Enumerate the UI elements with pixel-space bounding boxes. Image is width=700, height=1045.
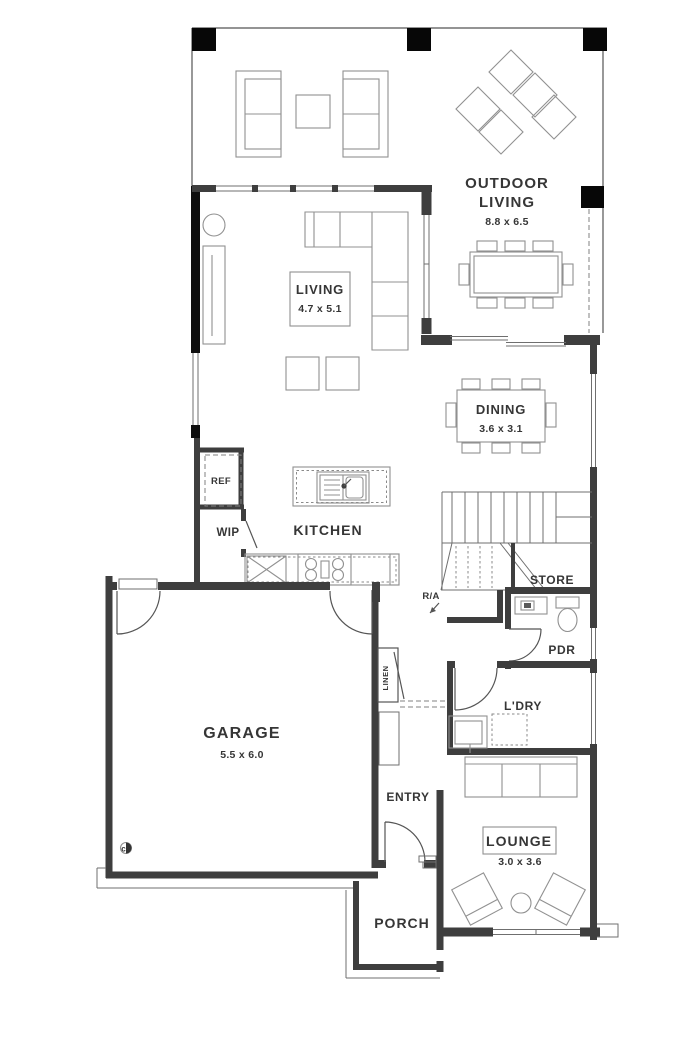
bulkhead-dashed (400, 701, 448, 707)
lounge-dims: 3.0 x 3.6 (498, 856, 542, 868)
kitchen-label: KITCHEN (293, 522, 362, 538)
lounge-window (493, 930, 580, 935)
corner-step (597, 924, 618, 937)
laundry: L'DRY (447, 665, 597, 754)
living-room: LIVING 4.7 x 5.1 (192, 186, 432, 438)
pantry-walls (197, 450, 244, 557)
post (192, 28, 216, 51)
armchair (535, 873, 586, 925)
kitchen: REF WIP KITCHEN (197, 438, 399, 588)
linen-closet: LINEN (378, 648, 404, 702)
outdoor-dining-set (459, 241, 573, 308)
dining-name: DINING (476, 402, 526, 417)
porch-label: PORCH (374, 915, 430, 931)
powder-room: PDR (508, 590, 596, 669)
toilet (556, 597, 579, 632)
garage-dims: 5.5 x 6.0 (220, 749, 264, 761)
living-dims: 4.7 x 5.1 (298, 303, 342, 315)
meter-label: c (121, 845, 126, 854)
outdoor-loungers (456, 50, 576, 154)
lounge-name: LOUNGE (486, 833, 552, 849)
ottoman (326, 357, 359, 390)
outdoor-living-name-line2: LIVING (479, 194, 535, 211)
garage-side-door (117, 591, 160, 634)
laundry-window (592, 673, 596, 744)
lower-treads (456, 546, 492, 588)
hall-cupboard (379, 712, 399, 765)
plant (203, 214, 225, 236)
pdr-door (509, 629, 541, 661)
pdr-window (592, 628, 596, 659)
lounge-sofa (465, 757, 577, 797)
meter: c (121, 843, 132, 854)
outdoor-living-name-line1: OUTDOOR (465, 175, 549, 192)
alfresco-slider (450, 337, 566, 347)
laundry-trough (449, 716, 487, 753)
wip-label: WIP (217, 527, 240, 539)
cooktop-bench (245, 554, 399, 585)
side-table (511, 893, 531, 913)
island-bench (293, 467, 390, 506)
garage-side-door-panel (119, 579, 157, 589)
dining-window (592, 374, 596, 467)
floor-plan-page: OUTDOOR LIVING 8.8 x 6.5 LIVING 4.7 x 5.… (0, 0, 700, 1045)
porch: PORCH (346, 881, 443, 978)
post (583, 28, 607, 51)
outdoor-sofa-set (236, 71, 388, 157)
washer-space (492, 714, 527, 745)
floor-plan-drawing: OUTDOOR LIVING 8.8 x 6.5 LIVING 4.7 x 5.… (0, 0, 700, 1045)
garage: c GARAGE 5.5 x 6.0 (97, 576, 380, 888)
west-window (193, 353, 198, 425)
outdoor-living-label: OUTDOOR LIVING 8.8 x 6.5 (465, 175, 549, 228)
armchair (452, 873, 503, 925)
store-label: STORE (530, 573, 574, 587)
coffee-table (296, 95, 330, 128)
living-label-box (290, 272, 350, 326)
dining-dims: 3.6 x 3.1 (479, 423, 523, 435)
pdr-label: PDR (548, 643, 575, 657)
entry-label: ENTRY (386, 790, 429, 804)
laundry-label: L'DRY (504, 699, 542, 713)
east-slider (424, 215, 429, 318)
ref-label: REF (211, 476, 231, 487)
post (581, 186, 604, 208)
return-air-label: R/A (422, 591, 439, 602)
post (407, 28, 431, 51)
ottoman (286, 357, 319, 390)
outdoor-living-area: OUTDOOR LIVING 8.8 x 6.5 (192, 28, 607, 333)
laundry-door (455, 668, 497, 710)
garage-entry-door (330, 591, 372, 634)
cooktop (298, 554, 351, 585)
pantry-door (246, 521, 257, 548)
tv-unit (203, 246, 225, 344)
duct-walls (447, 590, 503, 620)
outdoor-living-dims: 8.8 x 6.5 (485, 216, 529, 228)
living-name: LIVING (296, 282, 344, 297)
garage-name: GARAGE (203, 725, 280, 742)
linen-label: LINEN (381, 666, 390, 691)
